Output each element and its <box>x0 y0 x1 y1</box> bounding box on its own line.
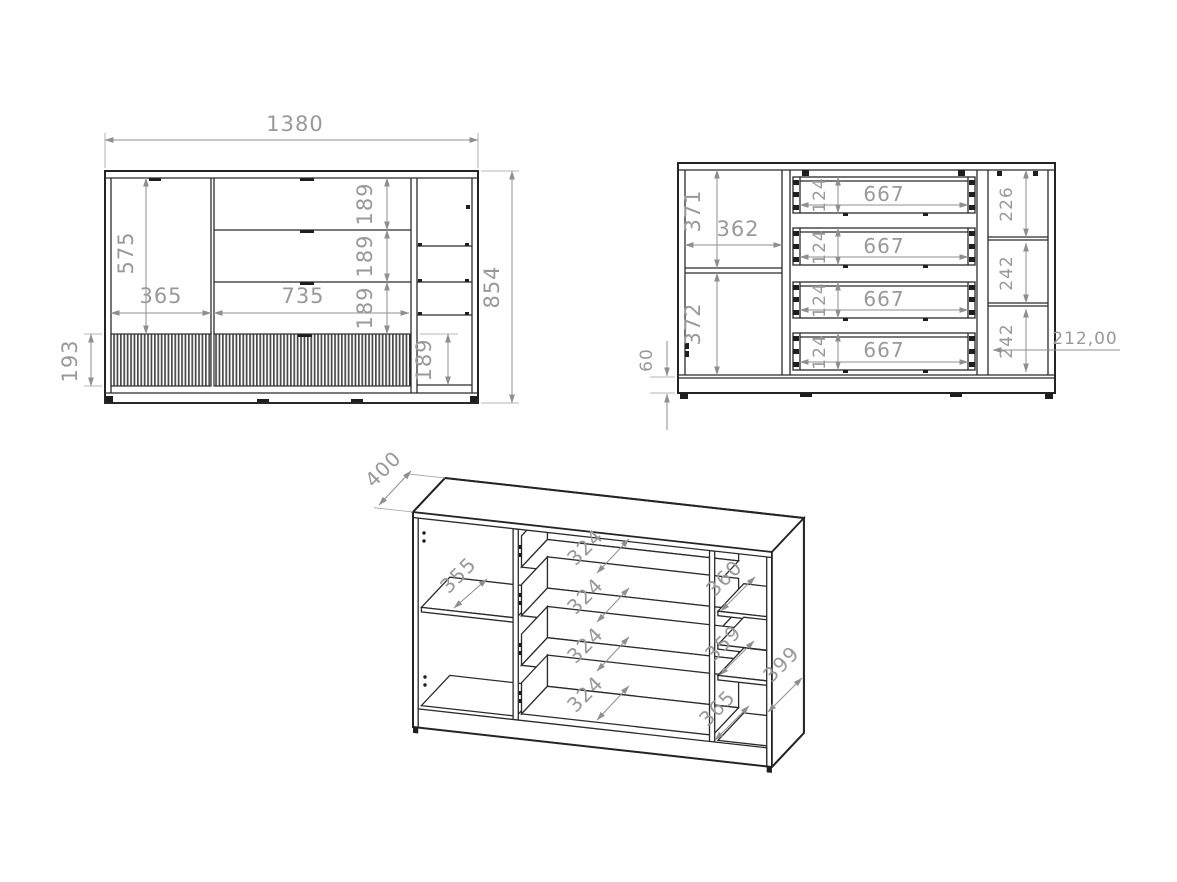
door-handle-notch <box>149 178 161 181</box>
bottom-drawer-handle-notch <box>298 334 312 337</box>
hinge-mark <box>685 351 689 357</box>
dim-drawer1-height: 124 <box>810 177 830 212</box>
foot <box>800 393 812 397</box>
front-view: 1380 854 575 365 735 189 189 189 189 193 <box>58 112 519 404</box>
dim-drawer-h3: 189 <box>353 286 377 329</box>
hinge-dot <box>422 539 425 542</box>
dim-niche-height: 189 <box>412 338 436 381</box>
dim-overall-width: 1380 <box>266 112 323 136</box>
dim-lower-height: 372 <box>681 302 705 345</box>
perspective-view: 400 355 324 324 324 324 360 359 365 399 <box>360 446 804 773</box>
dim-right-mid: 242 <box>997 255 1017 290</box>
fluted-door-front <box>111 334 211 386</box>
dim-depth: 400 <box>360 446 406 492</box>
foot <box>680 393 688 399</box>
dim-drawer-h2: 189 <box>353 234 377 277</box>
dim-base-height: 60 <box>637 348 657 372</box>
foot <box>767 767 772 773</box>
foot <box>950 393 962 397</box>
dim-drawer1-width: 667 <box>863 182 904 206</box>
internal-view: 371 362 372 60 667 124 667 124 667 124 6… <box>637 163 1120 430</box>
dim-right-bottom: 242 <box>997 323 1017 358</box>
dim-drawer2-height: 124 <box>810 229 830 264</box>
dim-right-top: 226 <box>997 186 1017 221</box>
dim-drawer4-height: 124 <box>810 334 830 369</box>
dim-door-width: 365 <box>139 284 182 308</box>
dim-depth-note: 212,00 <box>1052 329 1117 349</box>
dim-drawer3-height: 124 <box>810 282 830 317</box>
dim-overall-height: 854 <box>480 265 504 308</box>
dim-drawer2-width: 667 <box>863 234 904 258</box>
technical-drawing-page: 1380 854 575 365 735 189 189 189 189 193 <box>0 0 1177 882</box>
drawer2-handle-notch <box>300 230 314 233</box>
fluted-drawer-front <box>214 334 410 386</box>
dim-plinth-height: 193 <box>58 339 82 382</box>
foot <box>1045 393 1053 399</box>
drawer1-handle-notch <box>300 178 314 181</box>
internal-view-labels: 371 362 372 60 667 124 667 124 667 124 6… <box>637 177 1118 372</box>
dim-inner-width: 362 <box>716 217 759 241</box>
dim-door-height: 575 <box>114 231 138 274</box>
foot <box>413 727 418 734</box>
dim-drawer-width: 735 <box>281 284 324 308</box>
dim-drawer3-width: 667 <box>863 287 904 311</box>
hinge-dot <box>423 683 426 686</box>
dim-drawer4-width: 667 <box>863 338 904 362</box>
hinge-dot <box>422 531 425 534</box>
partition-left-edge <box>513 529 518 720</box>
hinge-dot <box>423 675 426 678</box>
dim-drawer-h1: 189 <box>353 182 377 225</box>
dim-upper-height: 371 <box>681 189 705 232</box>
furniture-technical-drawing: 1380 854 575 365 735 189 189 189 189 193 <box>0 0 1177 882</box>
